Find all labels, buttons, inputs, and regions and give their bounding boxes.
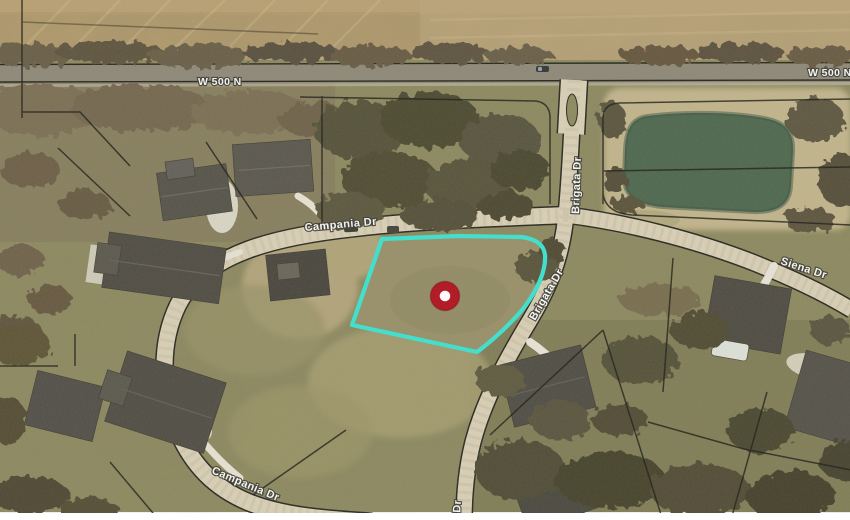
aerial-parcel-map[interactable]: W 500 N W 500 N Campania Dr Campania Dr …	[0, 0, 850, 520]
map-image: W 500 N W 500 N Campania Dr Campania Dr …	[0, 0, 850, 520]
road-label-w500n-right: W 500 N	[808, 67, 850, 79]
road-label-w500n-left: W 500 N	[198, 76, 242, 88]
road-label-brigata-top: Brigata Dr	[570, 156, 584, 214]
bottom-white-strip	[0, 513, 850, 520]
photo-grain-overlay	[0, 0, 850, 513]
